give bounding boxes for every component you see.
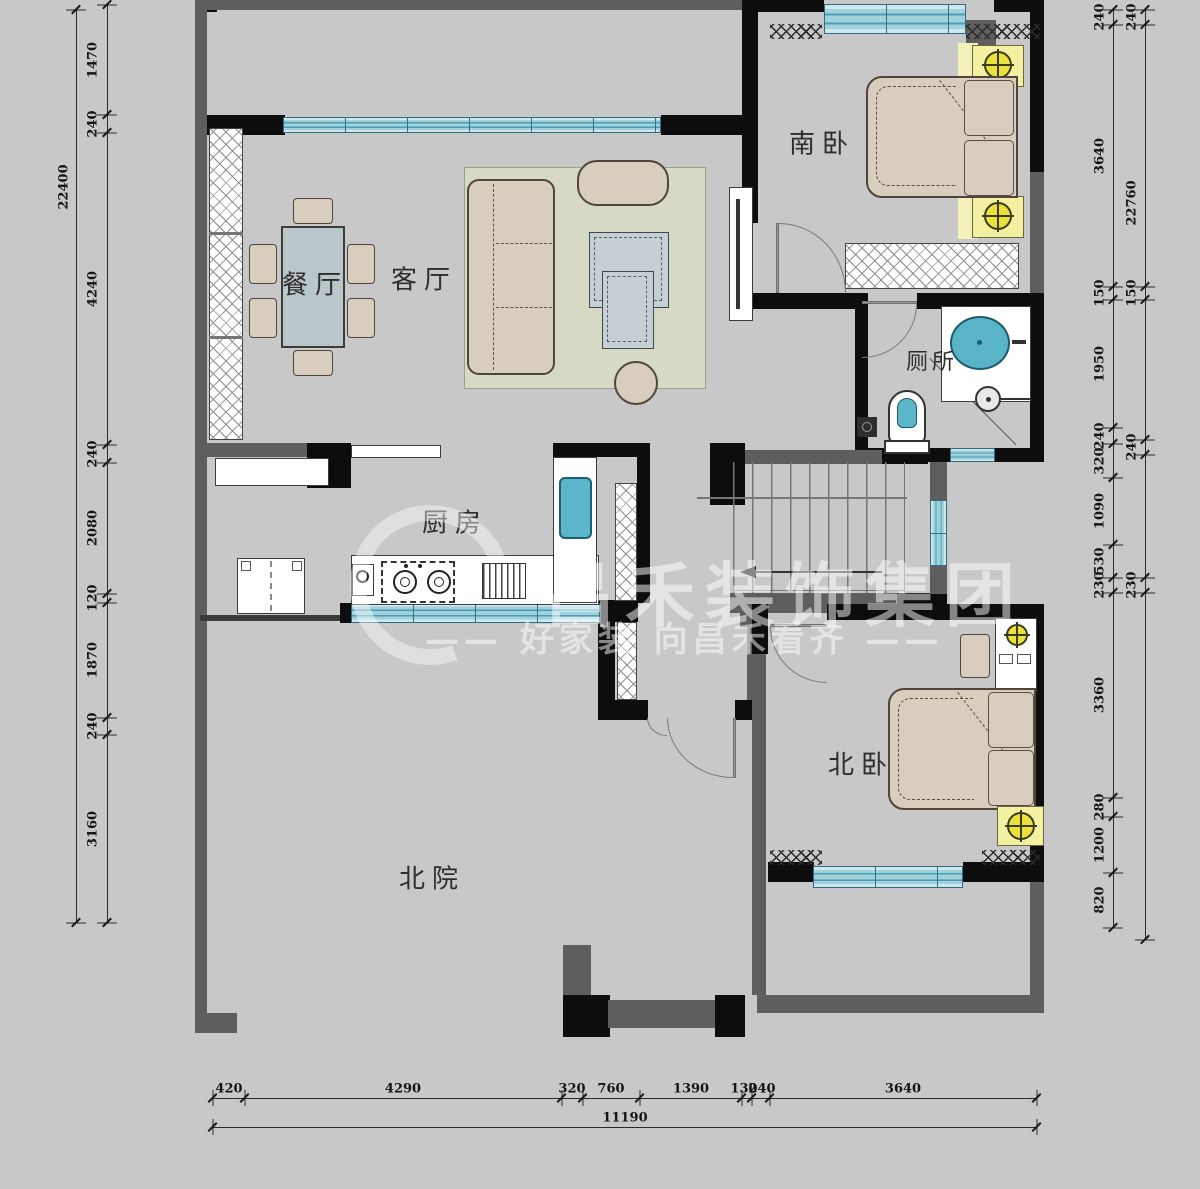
toilet-seat — [897, 398, 917, 428]
dim-tick — [1135, 940, 1155, 941]
room-label-living: 客厅 — [391, 260, 457, 297]
dim-label: 120 — [86, 584, 101, 611]
dim-label: 3360 — [1093, 677, 1108, 713]
chaise — [577, 160, 669, 206]
wall-segment — [1030, 172, 1044, 302]
kitchen-sink — [559, 477, 592, 539]
dim-label: 22760 — [1125, 180, 1140, 225]
wall-segment — [207, 0, 745, 10]
window-toilet — [950, 448, 995, 462]
dim-tick — [245, 1090, 246, 1106]
dim-tick — [1103, 928, 1123, 929]
wall-segment — [195, 0, 207, 1013]
toilet-tank — [884, 440, 930, 454]
lamp-icon — [984, 202, 1012, 230]
dim-label: 820 — [1093, 886, 1108, 913]
dim-tick — [1037, 1119, 1038, 1135]
dim-label: 760 — [597, 1082, 624, 1097]
dim-label: 4240 — [86, 271, 101, 307]
dim-tick — [97, 923, 117, 924]
coffee-table-inner — [607, 276, 647, 342]
desk-item — [1017, 654, 1031, 664]
curtain-icon — [770, 850, 822, 865]
dim-tick — [1103, 545, 1123, 546]
dim-label: 230 — [1125, 571, 1140, 598]
dim-label: 11190 — [602, 1111, 647, 1126]
watermark-tagline: —— 好家装 向昌禾看齐 —— — [425, 612, 944, 661]
dim-label: 1390 — [673, 1082, 709, 1097]
dimension-line — [1113, 10, 1114, 928]
dim-label: 320 — [1093, 447, 1108, 474]
dim-label: 240 — [1125, 3, 1140, 30]
window-south-bedroom — [824, 4, 966, 34]
dim-label: 150 — [1093, 279, 1108, 306]
dim-tick — [213, 1119, 214, 1135]
dim-label: 1870 — [86, 642, 101, 678]
dim-tick — [213, 1090, 214, 1106]
wall-segment — [758, 293, 868, 309]
wall-segment — [752, 654, 766, 882]
dimension-line — [76, 10, 77, 923]
dim-label: 4290 — [385, 1082, 421, 1097]
dim-label: 1950 — [1093, 346, 1108, 382]
dim-label: 1090 — [1093, 493, 1108, 529]
dim-label: 240 — [86, 712, 101, 739]
wall-segment — [1030, 302, 1044, 448]
dimension-line — [213, 1127, 1037, 1128]
fridge-divider — [270, 561, 272, 611]
door-swing-arc — [667, 718, 733, 778]
dining-chair — [347, 298, 375, 338]
pillow — [988, 692, 1034, 748]
sofa — [467, 179, 555, 375]
dim-label: 3640 — [885, 1082, 921, 1097]
dimension-line — [107, 5, 108, 923]
dining-chair — [347, 244, 375, 284]
dim-label: 2080 — [86, 510, 101, 546]
wall-segment — [608, 1000, 715, 1028]
wall-segment — [995, 448, 1044, 462]
dining-chair — [293, 350, 333, 376]
pillow — [964, 140, 1014, 196]
bed-trim — [898, 698, 974, 800]
dim-label: 230 — [1093, 571, 1108, 598]
wall-segment — [563, 995, 610, 1037]
window-living — [283, 117, 661, 133]
wall-segment — [757, 995, 1044, 1013]
wall-segment — [598, 700, 648, 720]
lamp-icon — [1007, 812, 1035, 840]
sofa-back-line — [493, 184, 494, 370]
wall-segment — [207, 443, 309, 457]
closet-divider — [209, 336, 243, 339]
pillow — [964, 80, 1014, 136]
dim-label: 1200 — [1093, 827, 1108, 863]
dim-tick — [640, 1090, 641, 1106]
lamp-icon — [984, 51, 1012, 79]
pouf — [614, 361, 658, 405]
dimension-line — [1145, 10, 1146, 940]
room-label-dining: 餐厅 — [282, 265, 348, 302]
dining-chair — [249, 244, 277, 284]
shower-arm — [1001, 398, 1031, 400]
curtain-icon — [982, 850, 1040, 865]
kitchen-wall-cabinet — [215, 458, 329, 486]
wall-segment — [200, 615, 352, 621]
room-label-north-bedroom: 北卧 — [828, 745, 894, 782]
wall-segment — [1030, 882, 1044, 1013]
dining-chair — [293, 198, 333, 224]
curtain-icon — [966, 24, 1040, 39]
dim-tick — [1103, 873, 1123, 874]
floorplan-canvas: 南卧 餐厅 客厅 厕所 厨房 北卧 北院 — [0, 0, 1200, 1189]
dim-tick — [1103, 478, 1123, 479]
dim-label: 1470 — [86, 42, 101, 78]
door-swing-arc — [647, 718, 667, 736]
hall-closet — [209, 128, 243, 440]
pillow — [988, 750, 1034, 806]
kitchen-top-cabinet — [351, 445, 441, 458]
wall-segment — [768, 862, 814, 882]
wall-segment — [963, 862, 1044, 882]
room-label-toilet: 厕所 — [906, 344, 958, 376]
dimension-line — [213, 1098, 1037, 1099]
wall-segment — [563, 945, 591, 997]
closet-divider — [209, 232, 243, 235]
wall-segment — [752, 882, 766, 995]
dim-label: 240 — [1125, 433, 1140, 460]
room-label-north-yard: 北院 — [399, 859, 465, 896]
basin-drain — [977, 340, 982, 345]
bed-trim — [876, 86, 956, 186]
dim-label: 320 — [558, 1082, 585, 1097]
tv-cabinet — [729, 187, 753, 321]
dim-tick — [1037, 1090, 1038, 1106]
dim-label: 240 — [86, 110, 101, 137]
dim-label: 280 — [1093, 793, 1108, 820]
dim-label: 240 — [748, 1082, 775, 1097]
dim-label: 240 — [86, 440, 101, 467]
tv-screen — [736, 199, 740, 309]
room-label-south-bedroom: 南卧 — [789, 124, 855, 161]
wardrobe-south-bedroom — [845, 243, 1019, 289]
dim-label: 150 — [1125, 279, 1140, 306]
wall-segment — [930, 462, 947, 500]
wall-segment — [553, 443, 650, 457]
window-north-bedroom — [813, 866, 963, 888]
fridge-hinge — [292, 561, 302, 571]
dim-label: 3160 — [86, 811, 101, 847]
door-swing-arc — [779, 223, 846, 293]
wall-segment — [195, 1013, 237, 1033]
door-leaf — [733, 718, 736, 778]
dim-tick — [66, 10, 86, 11]
stair-landing-line — [697, 497, 907, 499]
curtain-icon — [770, 24, 822, 39]
wall-segment — [758, 0, 824, 12]
dim-label: 3640 — [1093, 138, 1108, 174]
dining-chair — [249, 298, 277, 338]
shower-head-dot — [986, 397, 991, 402]
dim-label: 420 — [215, 1082, 242, 1097]
floor-drain-circle — [862, 422, 872, 432]
dim-label: 240 — [1093, 3, 1108, 30]
wall-segment — [715, 995, 745, 1037]
wall-segment — [661, 115, 745, 135]
sofa-cushion-line — [496, 307, 552, 308]
fridge-hinge — [241, 561, 251, 571]
dim-label: 240 — [1093, 422, 1108, 449]
sofa-cushion-line — [496, 243, 552, 244]
faucet-icon — [1012, 340, 1026, 344]
dim-tick — [97, 5, 117, 6]
dim-label: 22400 — [57, 164, 72, 209]
dim-tick — [66, 923, 86, 924]
desk-item — [999, 654, 1013, 664]
